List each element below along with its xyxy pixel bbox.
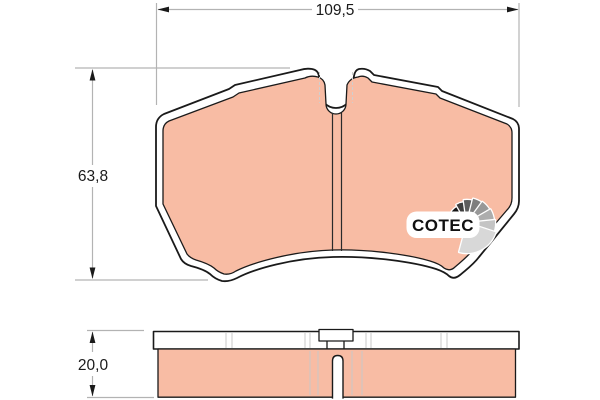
groove-slot: [333, 356, 344, 399]
height-dimension-label: 63,8: [78, 168, 108, 185]
locating-tab: [319, 330, 353, 342]
drawing-canvas: 109,5 63,8 20,0: [0, 0, 600, 400]
width-dimension-label: 109,5: [316, 2, 355, 19]
side-view: [154, 330, 520, 399]
logo-text: COTEC: [412, 216, 474, 235]
thickness-dimension-label: 20,0: [78, 357, 109, 374]
brake-pad-drawing: 109,5 63,8 20,0: [0, 0, 600, 400]
